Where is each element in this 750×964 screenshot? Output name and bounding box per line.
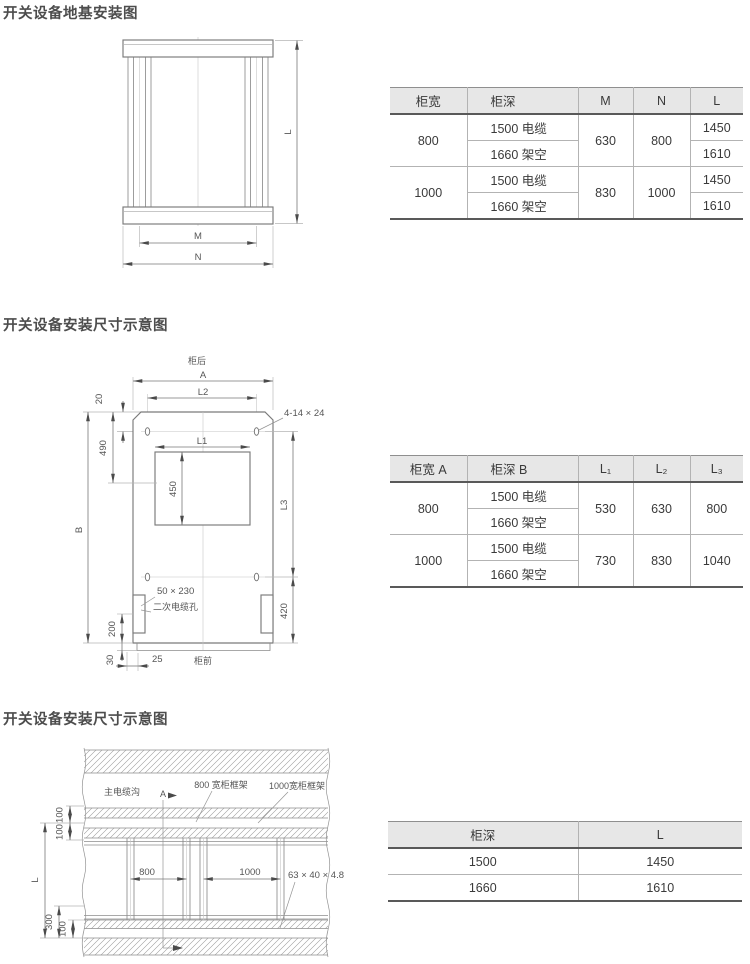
cable-trench-label: 主电缆沟 [104,786,140,797]
dim-100a-label: 100 [55,807,66,823]
floorplan-drawing: 主电缆沟 A 800 宽柜框架 1000宽柜框架 800 1000 63 × 4… [30,745,350,962]
table-header-row: 柜宽 A 柜深 B L₁ L₂ L₃ [390,456,743,483]
frame-800-label: 800 宽柜框架 [194,779,248,790]
table-row: 800 1500 电缆 630 800 1450 [390,114,743,141]
col-header: L [690,88,743,115]
col-header: N [633,88,690,115]
dim-300-label: 300 [44,914,55,930]
dim-420-label: 420 [279,603,290,619]
foundation-drawing: L M N [95,30,310,280]
table-row: 800 1500 电缆 530 630 800 [390,482,743,509]
cable-hole-right [261,595,273,633]
table-header-row: 柜宽 柜深 M N L [390,88,743,115]
col-header: 柜深 [467,88,578,115]
col-header: M [578,88,633,115]
dim-25-label: 25 [152,654,163,665]
section1-title: 开关设备地基安装图 [3,2,138,23]
col-header: L₃ [690,456,743,483]
dim-L3-label: L3 [279,500,290,511]
section3-title: 开关设备安装尺寸示意图 [3,708,168,729]
col-header: L [578,822,742,849]
dim-L-label: L [283,129,294,134]
table-row: 1660 1610 [388,875,742,902]
dim-490-label: 490 [98,440,109,456]
cabinet-front-label: 柜前 [194,655,212,666]
dim-L-label: L [30,877,41,882]
top-beam [123,40,273,57]
angle-steel-label: 63 × 40 × 4.8 [288,870,344,881]
dim-A-label: A [200,370,207,381]
col-header: L₂ [633,456,690,483]
cable-hole-name-label: 二次电缆孔 [153,601,198,612]
dim-450-label: 450 [168,481,179,497]
col-header: 柜深 [388,822,578,849]
dim-M-label: M [194,231,202,242]
dim-800-label: 800 [139,867,155,878]
dim-1000-label: 1000 [239,867,260,878]
catalog-page: { "page": { "header_bg": "#e7e7e7", "acc… [0,0,750,964]
col-header: 柜深 B [467,456,578,483]
col-header: 柜宽 [390,88,467,115]
bottom-beam [123,207,273,224]
col-header: L₁ [578,456,633,483]
section-arrow-top [168,793,177,799]
installation-table: 柜宽 A 柜深 B L₁ L₂ L₃ 800 1500 电缆 530 630 8… [390,455,743,588]
cable-hole-left [133,595,145,633]
dim-100b-label: 100 [55,824,66,840]
dim-20-label: 20 [94,394,105,405]
footprint-drawing: 柜后 A L2 20 4-14 × 24 L1 450 490 B L3 420 [78,350,325,678]
table-row: 1000 1500 电缆 730 830 1040 [390,535,743,561]
dim-30-label: 30 [105,655,116,666]
dim-L2-label: L2 [198,387,209,398]
dim-100c-label: 100 [58,921,69,937]
cable-hole-size-label: 50 × 230 [157,586,194,597]
col-header: 柜宽 A [390,456,467,483]
dim-B-label: B [74,527,85,533]
foundation-table: 柜宽 柜深 M N L 800 1500 电缆 630 800 1450 166… [390,87,743,220]
section2-title: 开关设备安装尺寸示意图 [3,314,168,335]
cabinet-back-label: 柜后 [188,355,206,366]
dim-N-label: N [195,252,202,263]
section-A-label: A [160,789,166,799]
table-header-row: 柜深 L [388,822,742,849]
dim-L1-label: L1 [197,436,208,447]
holes-spec-label: 4-14 × 24 [284,408,324,419]
cabinet-lip [137,643,270,651]
table-row: 1500 1450 [388,848,742,875]
depth-table: 柜深 L 1500 1450 1660 1610 [388,821,742,902]
table-row: 1000 1500 电缆 830 1000 1450 [390,167,743,193]
dim-200-label: 200 [107,621,118,637]
frame-1000-label: 1000宽柜框架 [269,780,325,791]
